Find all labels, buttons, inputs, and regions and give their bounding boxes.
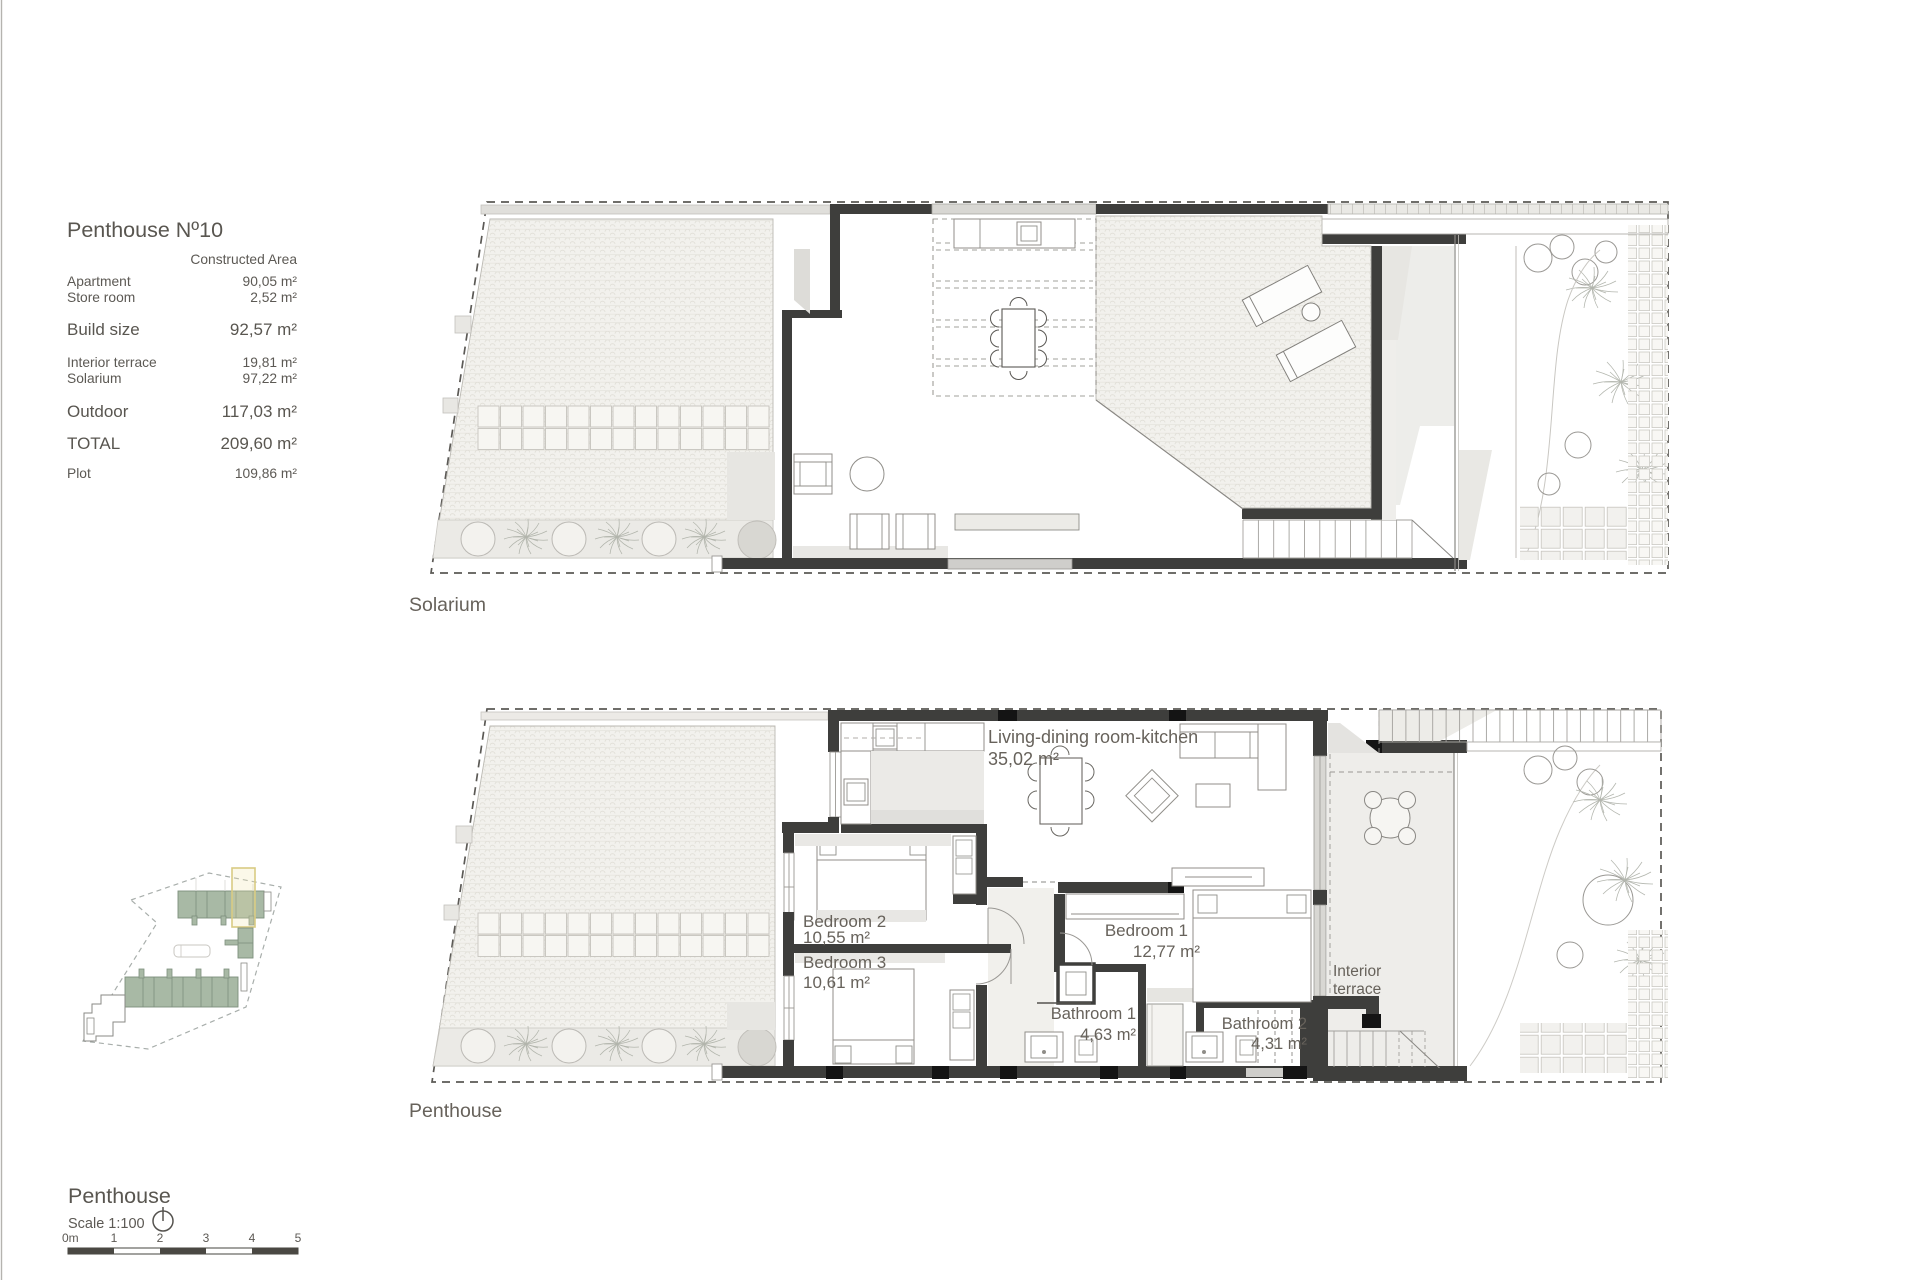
svg-text:109,86 m²: 109,86 m² <box>235 466 298 481</box>
svg-text:209,60 m²: 209,60 m² <box>220 434 297 453</box>
svg-text:Bedroom 3: Bedroom 3 <box>803 953 886 972</box>
svg-text:90,05 m²: 90,05 m² <box>243 274 298 289</box>
svg-text:Constructed Area: Constructed Area <box>190 252 297 267</box>
svg-text:Plot: Plot <box>67 466 91 481</box>
svg-text:terrace: terrace <box>1333 981 1381 998</box>
svg-text:19,81 m²: 19,81 m² <box>243 355 298 370</box>
svg-text:97,22 m²: 97,22 m² <box>243 371 298 386</box>
svg-text:0m: 0m <box>62 1231 79 1245</box>
svg-text:Bedroom 1: Bedroom 1 <box>1105 921 1188 940</box>
svg-text:Bathroom 2: Bathroom 2 <box>1222 1015 1307 1033</box>
svg-text:4,31 m²: 4,31 m² <box>1251 1035 1307 1053</box>
svg-text:3: 3 <box>203 1231 210 1245</box>
svg-text:TOTAL: TOTAL <box>67 434 120 453</box>
svg-text:117,03 m²: 117,03 m² <box>222 402 298 421</box>
svg-text:10,61 m²: 10,61 m² <box>803 973 870 992</box>
svg-text:5: 5 <box>295 1231 302 1245</box>
svg-text:1: 1 <box>111 1231 118 1245</box>
svg-text:Interior terrace: Interior terrace <box>67 355 157 370</box>
svg-text:Living-dining room-kitchen: Living-dining room-kitchen <box>988 727 1198 747</box>
svg-text:Scale 1:100: Scale 1:100 <box>68 1216 145 1232</box>
svg-text:Penthouse: Penthouse <box>409 1100 502 1122</box>
svg-text:Penthouse Nº10: Penthouse Nº10 <box>67 218 223 242</box>
svg-text:Bathroom 1: Bathroom 1 <box>1051 1005 1136 1023</box>
svg-text:35,02 m²: 35,02 m² <box>988 749 1059 769</box>
svg-text:4: 4 <box>249 1231 256 1245</box>
svg-text:Build size: Build size <box>67 320 140 339</box>
svg-text:Solarium: Solarium <box>67 371 121 386</box>
svg-text:Solarium: Solarium <box>409 594 486 616</box>
svg-text:4,63 m²: 4,63 m² <box>1080 1026 1136 1044</box>
svg-text:Outdoor: Outdoor <box>67 402 129 421</box>
svg-text:Penthouse: Penthouse <box>68 1184 171 1208</box>
svg-text:Store room: Store room <box>67 290 135 305</box>
svg-text:Interior: Interior <box>1333 963 1381 980</box>
svg-text:10,55 m²: 10,55 m² <box>803 928 870 947</box>
svg-text:92,57 m²: 92,57 m² <box>230 320 297 339</box>
svg-text:2,52 m²: 2,52 m² <box>250 290 297 305</box>
svg-text:12,77 m²: 12,77 m² <box>1133 942 1200 961</box>
svg-text:2: 2 <box>157 1231 164 1245</box>
svg-text:Apartment: Apartment <box>67 274 131 289</box>
